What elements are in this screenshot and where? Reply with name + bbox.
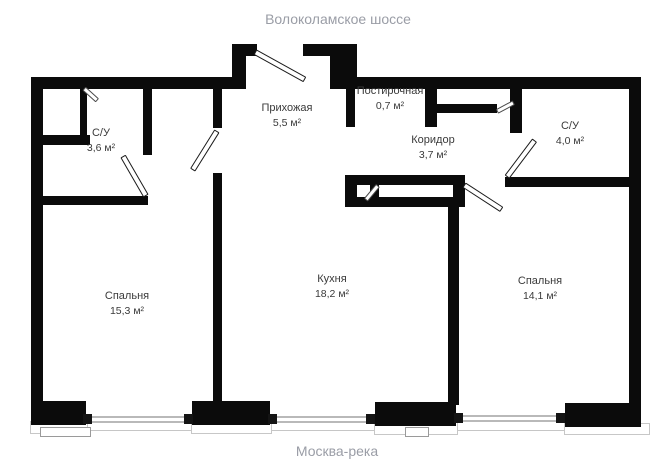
facade-ledge [405,427,429,437]
wall-bottom-pier-a [31,401,86,425]
window-bedroom-right [456,415,565,422]
room-area: 18,2 м² [315,287,349,302]
room-label-kitchen: Кухня 18,2 м² [315,272,349,302]
wall-hall-stub [213,88,222,128]
street-label-top: Волоколамское шоссе [265,11,411,27]
wall-laundry-west [425,88,437,127]
wall-laundry-south [437,104,497,113]
wall-kitchen-bedroom-right-separator [448,203,459,405]
room-label-laundry: Постирочная 0,7 м² [357,84,424,114]
window-end-marker [184,414,193,424]
wall-bathroom1-east [143,88,152,155]
room-area: 3,7 м² [411,148,454,163]
room-area: 5,5 м² [262,116,313,131]
bedroom-right-door [462,182,503,212]
floor-plan: Волоколамское шоссе Москва-река [0,0,668,471]
wall-exterior-right [629,77,641,407]
river-label-bottom: Москва-река [296,443,378,459]
window-end-marker [454,413,463,423]
room-name: Коридор [411,133,454,148]
room-label-bedroom-left: Спальня 15,3 м² [105,289,149,319]
wall-bathroom1-south [31,196,148,205]
room-label-bathroom2: С/У 4,0 м² [556,119,584,149]
facade-line [31,430,648,431]
room-label-bedroom-right: Спальня 14,1 м² [518,274,562,304]
window-bedroom-left [85,416,192,423]
wall-bottom-pier-d [565,403,641,427]
window-end-marker [556,413,565,423]
window-end-marker [268,414,277,424]
wall-exterior-left [31,77,43,407]
window-end-marker [83,414,92,424]
wall-bedroom-left-kitchen-separator [213,173,222,405]
bathroom2-door [505,138,537,178]
room-name: Спальня [518,274,562,289]
wall-hall-east [346,88,355,127]
room-name: Спальня [105,289,149,304]
wall-bathroom2-west [510,88,522,133]
room-name: Кухня [315,272,349,287]
window-end-marker [366,414,375,424]
room-area: 0,7 м² [357,99,424,114]
bathroom1-door [120,155,148,198]
room-label-corridor: Коридор 3,7 м² [411,133,454,163]
wall-bottom-pier-b [192,401,270,425]
wall-bottom-pier-c [375,402,456,426]
room-name: Прихожая [262,101,313,116]
room-area: 14,1 м² [518,289,562,304]
facade-ledge [40,427,91,437]
room-name: С/У [87,126,115,141]
room-area: 4,0 м² [556,134,584,149]
wall-shaft-south [43,135,90,145]
wall-closet-south [345,197,457,207]
room-name: Постирочная [357,84,424,99]
window-kitchen [270,416,375,423]
bedroom-left-door [190,129,219,171]
room-area: 15,3 м² [105,304,149,319]
wall-bathroom2-south [505,177,641,187]
room-area: 3,6 м² [87,141,115,156]
room-name: С/У [556,119,584,134]
room-label-bathroom1: С/У 3,6 м² [87,126,115,156]
entrance-door [254,49,307,82]
room-label-hallway: Прихожая 5,5 м² [262,101,313,131]
